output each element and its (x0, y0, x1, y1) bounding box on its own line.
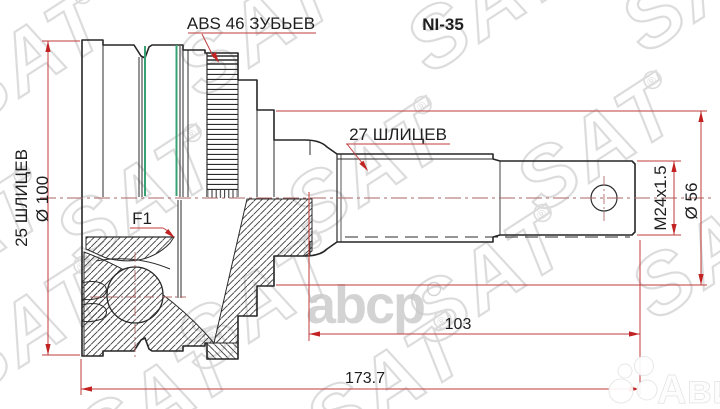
listing-image: SAT ® abcp (0, 0, 720, 409)
abcp-watermark: abcp (306, 275, 441, 335)
avito-logo-icon (618, 364, 632, 378)
avito-watermark: Авито (609, 357, 720, 409)
thread-label: M24x1.5 (651, 165, 670, 230)
flange-diameter-label: Ø 56 (682, 183, 701, 220)
cv-joint-technical-drawing: SAT ® abcp (0, 0, 720, 409)
shaft-splines-label: 27 ШЛИЦЕВ (349, 125, 447, 144)
total-length-label: 173.7 (345, 370, 385, 387)
hub-splines-label: 25 ШЛИЦЕВ (12, 149, 31, 247)
abs-ring (207, 53, 238, 198)
avito-logo-icon (635, 357, 654, 376)
abcp-watermark-text: abcp (306, 275, 424, 335)
shaft-length-label: 103 (445, 316, 472, 333)
abs-ring-section (207, 343, 238, 359)
avito-watermark-text: Авито (657, 366, 720, 409)
avito-logo-icon (609, 379, 633, 403)
abs-ring-label: ABS 46 ЗУБЬЕВ (187, 14, 315, 33)
grease-label: F1 (132, 209, 152, 228)
outer-diameter-label: Ø 100 (33, 176, 52, 222)
part-code-label: NI-35 (422, 15, 464, 34)
avito-logo-icon (637, 380, 657, 400)
